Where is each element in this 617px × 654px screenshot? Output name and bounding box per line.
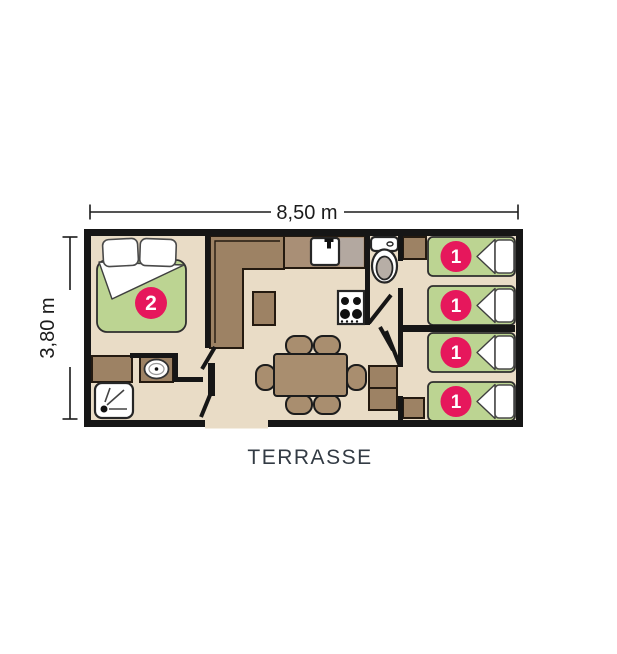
stove [338, 291, 364, 324]
entrance-opening [205, 416, 268, 429]
chair [286, 395, 312, 414]
pillow [495, 385, 514, 418]
chair [314, 395, 340, 414]
height-dimension: 3,80 m [37, 237, 78, 419]
shower [95, 383, 133, 418]
chair [314, 336, 340, 355]
toilet [371, 237, 398, 283]
width-dimension: 8,50 m [90, 202, 518, 224]
capacity-badge-label: 1 [451, 343, 462, 364]
storage-cabinet [369, 366, 397, 388]
chair [347, 365, 366, 390]
storage-cabinet [369, 388, 397, 410]
nightstand [403, 398, 424, 418]
toilet-flush-button [387, 242, 393, 246]
wall [398, 236, 403, 261]
wall-bedroom-divider [398, 325, 515, 332]
wall [173, 377, 203, 382]
nightstand [403, 237, 426, 259]
master-bedroom: 2 [97, 238, 186, 332]
dining-table [274, 354, 347, 396]
kitchen-sink [311, 238, 339, 265]
chair [286, 336, 312, 355]
toilet-seat [377, 257, 393, 280]
pillow [102, 238, 138, 267]
wall [365, 236, 370, 325]
pillow [495, 240, 514, 273]
wall [208, 363, 215, 396]
kitchen-drainer [340, 238, 364, 267]
terrace-label: TERRASSE [247, 446, 372, 469]
width-dimension-label: 8,50 m [276, 202, 337, 224]
kitchen-cabinet [253, 292, 275, 325]
bathroom-cabinet [92, 356, 132, 382]
single-bed-2: 1 [428, 286, 515, 325]
wall [205, 236, 210, 348]
height-dimension-label: 3,80 m [37, 297, 59, 358]
pillow [495, 336, 514, 369]
floorplan-page: 2 [0, 0, 617, 654]
capacity-badge-label: 1 [451, 296, 462, 317]
washbasin [140, 356, 173, 382]
capacity-badge-label: 1 [451, 247, 462, 268]
wall [130, 353, 178, 358]
single-bed-4: 1 [428, 382, 515, 421]
chair [256, 365, 275, 390]
pillow [140, 238, 177, 266]
wall [398, 396, 403, 421]
floorplan-drawing: 2 [0, 0, 617, 654]
single-bed-3: 1 [428, 333, 515, 372]
pillow [495, 289, 514, 322]
capacity-badge-label: 2 [145, 292, 157, 315]
single-bed-1: 1 [428, 237, 515, 276]
capacity-badge-label: 1 [451, 392, 462, 413]
